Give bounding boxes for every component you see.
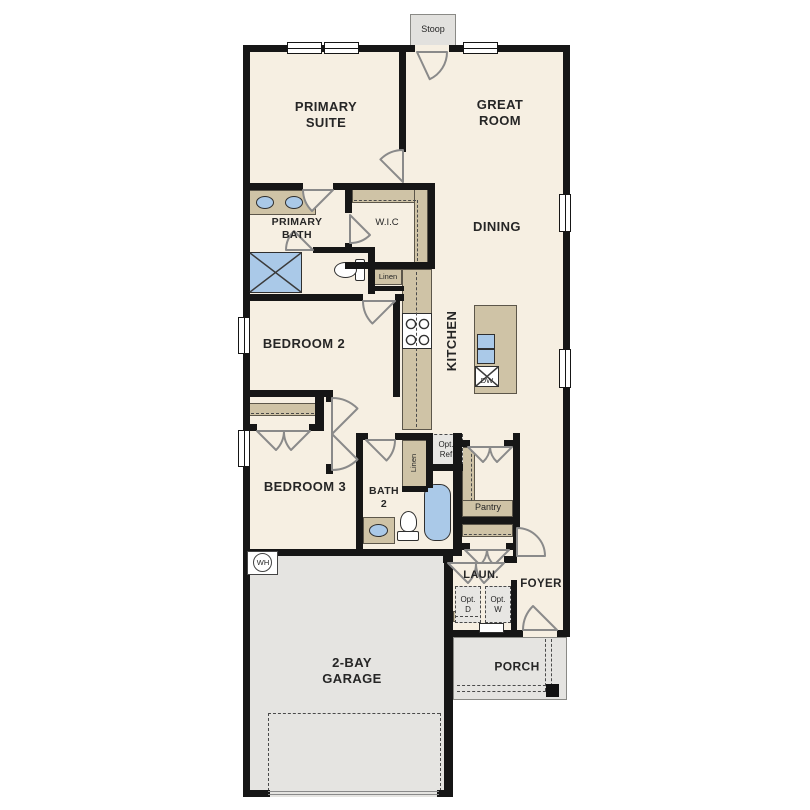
stoop-label: Stoop	[421, 25, 445, 35]
door-opening	[415, 45, 449, 52]
opt-dryer-label: Opt. D	[460, 595, 475, 613]
wall	[453, 433, 462, 556]
wall	[504, 556, 517, 563]
toilet	[397, 531, 419, 541]
porch-post	[546, 684, 559, 697]
great-room-label: GREAT ROOM	[477, 97, 524, 130]
closet-shelf	[249, 403, 321, 416]
bath2-label: BATH 2	[369, 485, 399, 511]
opt-washer: Opt. W	[485, 586, 511, 623]
toilet	[400, 511, 417, 532]
dining-label: DINING	[473, 219, 521, 235]
wall	[326, 464, 333, 474]
floor-plan: Opt. Ref Opt. D Opt. W WH	[0, 0, 810, 810]
wall	[437, 790, 453, 797]
wall	[345, 186, 352, 213]
window	[559, 349, 571, 388]
wall	[513, 433, 520, 556]
bathtub	[424, 484, 451, 541]
wall	[444, 556, 453, 797]
wall	[243, 390, 333, 397]
wall	[506, 543, 513, 550]
window	[238, 430, 250, 467]
wall	[326, 392, 333, 402]
closet-shelf	[462, 524, 513, 537]
sink	[285, 196, 303, 209]
wall	[243, 45, 250, 797]
porch-label: PORCH	[494, 660, 539, 675]
wall	[243, 183, 303, 190]
shelf-dash	[251, 413, 319, 414]
wall	[402, 486, 428, 492]
wall	[563, 45, 570, 637]
linen-upper-label: Linen	[379, 273, 397, 281]
primary-suite-label: PRIMARY SUITE	[295, 99, 357, 132]
wall	[462, 517, 513, 524]
bedroom3-label: BEDROOM 3	[264, 479, 346, 495]
foyer-label: FOYER	[520, 577, 562, 591]
shelf-dash	[455, 616, 478, 617]
wall	[393, 301, 400, 397]
wall	[345, 262, 435, 269]
water-heater-label: WH	[257, 559, 270, 567]
wall	[313, 247, 375, 253]
shelf-dash	[471, 449, 472, 501]
pantry-label: Pantry	[475, 503, 501, 513]
island-sink	[477, 349, 495, 364]
wall	[356, 433, 363, 556]
island-sink	[477, 334, 495, 349]
garage-label: 2-BAY GARAGE	[322, 655, 381, 688]
window	[463, 42, 498, 54]
linen-lower-label: Linen	[410, 454, 418, 472]
wall	[315, 397, 324, 431]
garage-door-line	[268, 791, 439, 795]
window	[287, 42, 322, 54]
window	[559, 194, 571, 232]
opt-dryer: Opt. D	[455, 586, 481, 623]
opt-ref-label: Opt. Ref	[438, 440, 453, 458]
sink	[256, 196, 274, 209]
wall	[399, 45, 406, 152]
stove	[402, 313, 432, 349]
wall	[243, 790, 270, 797]
garage-door-dash	[268, 713, 269, 791]
shelf-dash	[354, 200, 416, 201]
wall	[243, 294, 363, 301]
garage-door-dash	[440, 713, 441, 791]
shelf-dash	[417, 200, 418, 261]
wall	[368, 247, 375, 294]
cabinet-dash	[416, 272, 417, 427]
entry-step	[479, 623, 504, 633]
primary-bath-label: PRIMARY BATH	[272, 216, 323, 242]
kitchen-label: KITCHEN	[444, 311, 460, 372]
wall	[511, 580, 517, 637]
wic-label: W.I.C	[375, 218, 398, 228]
kitchen-counter	[402, 269, 432, 430]
shelf-dash	[464, 534, 511, 535]
window	[324, 42, 359, 54]
opt-washer-label: Opt. W	[490, 595, 505, 613]
garage-door-dash	[268, 713, 440, 714]
porch-dash	[457, 685, 551, 686]
porch-dash	[457, 691, 551, 692]
laundry-label: LAUN.	[463, 569, 499, 583]
sink	[369, 524, 388, 537]
wall	[557, 630, 570, 637]
wall	[462, 440, 470, 447]
window	[238, 317, 250, 354]
bedroom2-label: BEDROOM 2	[263, 336, 345, 352]
wall	[356, 433, 368, 440]
wall	[426, 438, 433, 488]
wall	[462, 543, 470, 550]
shower	[249, 252, 302, 293]
wall	[428, 183, 435, 269]
wall	[395, 294, 404, 301]
dishwasher-label: DW	[481, 377, 494, 385]
